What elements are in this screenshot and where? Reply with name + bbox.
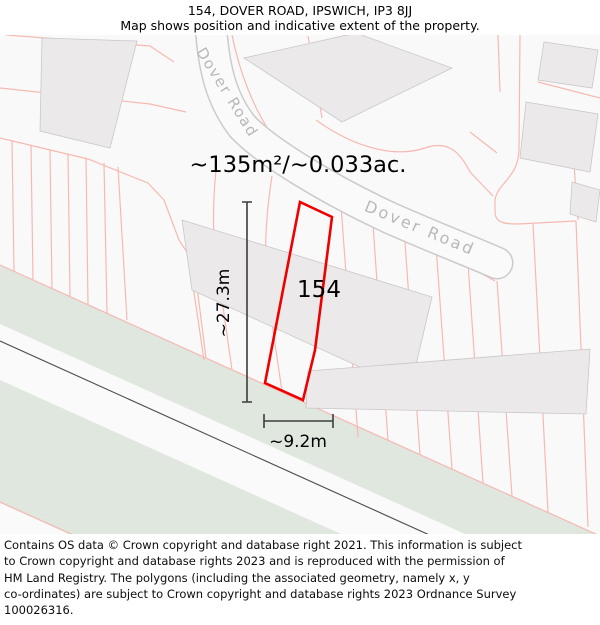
map-container: Dover Road Dover Road ~135m²/~0.033ac. 1…: [0, 35, 600, 538]
horizontal-dimension-label: ~9.2m: [269, 432, 327, 452]
copyright-line: to Crown copyright and database rights 2…: [4, 553, 598, 569]
vertical-dimension-label: ~27.3m: [214, 269, 234, 338]
copyright-line: HM Land Registry. The polygons (includin…: [4, 570, 598, 586]
area-label: ~135m²/~0.033ac.: [190, 152, 407, 178]
page-subtitle: Map shows position and indicative extent…: [0, 18, 600, 33]
copyright-line: 100026316.: [4, 602, 598, 618]
page: 154, DOVER ROAD, IPSWICH, IP3 8JJ Map sh…: [0, 0, 600, 625]
page-title: 154, DOVER ROAD, IPSWICH, IP3 8JJ: [0, 3, 600, 18]
copyright-line: co-ordinates) are subject to Crown copyr…: [4, 586, 598, 602]
plot-number-label: 154: [297, 277, 341, 303]
copyright-notice: Contains OS data © Crown copyright and d…: [4, 537, 598, 618]
header: 154, DOVER ROAD, IPSWICH, IP3 8JJ Map sh…: [0, 3, 600, 33]
copyright-line: Contains OS data © Crown copyright and d…: [4, 537, 598, 553]
property-map: Dover Road Dover Road ~135m²/~0.033ac. 1…: [0, 35, 600, 534]
building-footprint: [538, 42, 598, 88]
